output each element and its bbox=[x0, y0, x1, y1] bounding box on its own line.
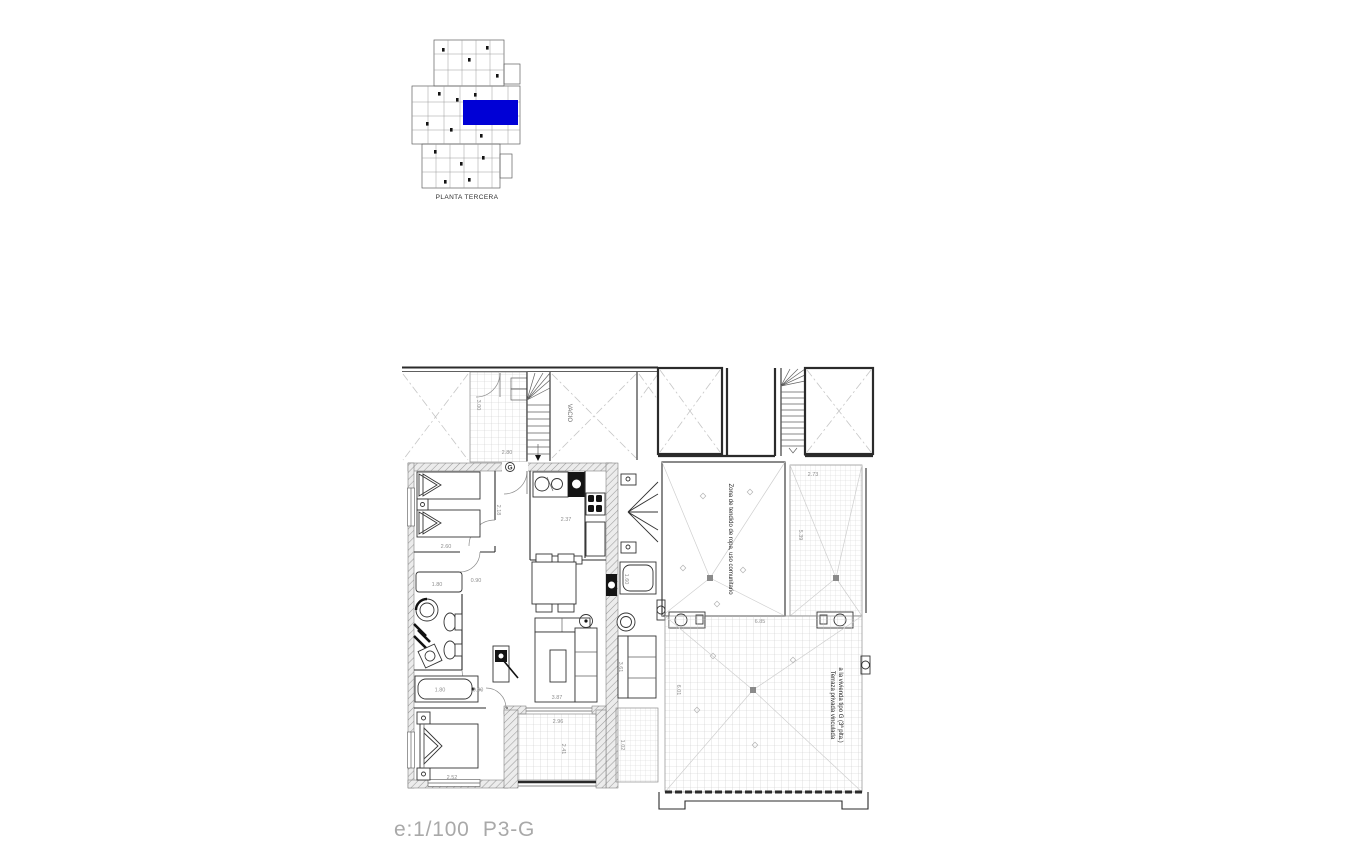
living-dining: 3.87 bbox=[493, 554, 597, 702]
dim-laundry-side: 2.73 bbox=[808, 472, 819, 478]
dim-living: 3.87 bbox=[552, 695, 563, 701]
dim-upper-height: 3.00 bbox=[475, 400, 481, 411]
main-terrace: 6.01 Terraza privada vinculada a la vivi… bbox=[659, 616, 870, 809]
dim-bath-pass: 0.90 bbox=[471, 578, 482, 584]
dim-bathtub: 1.80 bbox=[435, 688, 446, 694]
dim-upper-width: 2.80 bbox=[502, 450, 513, 456]
dim-adj-balcony: 1.02 bbox=[619, 740, 625, 751]
vacio-label: VACIO bbox=[566, 404, 572, 423]
scale-label: e:1/100 P3-G bbox=[394, 818, 535, 842]
dim-vanity: 1.80 bbox=[432, 582, 443, 588]
kitchen: 2.37 bbox=[533, 471, 605, 564]
unit-floor-plan: 3.00 2.80 VACIO bbox=[400, 360, 665, 805]
laundry-zone-label: Zona de tendido de ropa, uso comunitario bbox=[727, 483, 733, 595]
stair-roof bbox=[781, 368, 805, 456]
private-terrace-label-1: Terraza privada vinculada bbox=[829, 671, 835, 740]
dim-bath-hall: 0.90 bbox=[473, 688, 484, 694]
dim-adj-tub: 1.60 bbox=[623, 574, 629, 585]
upper-communal-area: 3.00 2.80 VACIO bbox=[402, 368, 658, 463]
private-terrace-label-2: a la vivienda tipo G (3ª plta.) bbox=[837, 667, 844, 742]
dim-hall: 2.18 bbox=[495, 505, 501, 516]
bedroom1-furniture: 2.60 bbox=[417, 472, 480, 550]
key-plan-building bbox=[412, 40, 520, 188]
key-plan bbox=[408, 38, 526, 190]
laundry-zone: Zona de tendido de ropa, uso comunitario bbox=[657, 462, 785, 620]
dim-terrace-w: 2.96 bbox=[553, 719, 564, 725]
roof-upper-area bbox=[658, 368, 873, 456]
dim-bedroom1: 2.60 bbox=[441, 544, 452, 550]
dim-terrace-depth: 6.01 bbox=[675, 685, 681, 696]
dim-bedroom2: 2.52 bbox=[447, 775, 458, 781]
unit-terrace: 2.96 2.41 bbox=[518, 714, 596, 786]
bedroom2-furniture: 2.52 bbox=[417, 712, 478, 781]
upper-terrace: 2.73 5.39 bbox=[790, 465, 866, 616]
bathroom: 1.80 0.90 1.80 0.90 bbox=[414, 572, 483, 702]
tv-icon bbox=[493, 646, 518, 682]
roof-terrace-plan: Zona de tendido de ropa, uso comunitario… bbox=[655, 360, 875, 812]
plan-sheet: PLANTA TERCERA 3.00 2.80 bbox=[0, 0, 1360, 850]
key-plan-caption: PLANTA TERCERA bbox=[408, 194, 526, 201]
dim-adj-sofa: 3.61 bbox=[617, 662, 623, 673]
stove-icon bbox=[586, 493, 605, 515]
unit-highlight bbox=[463, 100, 518, 125]
dim-kitchen: 2.37 bbox=[561, 517, 572, 523]
dim-laundry-depth: 5.39 bbox=[797, 530, 803, 541]
shower-basin bbox=[418, 644, 442, 668]
bathtub: 1.80 bbox=[415, 676, 478, 702]
roof-markers bbox=[680, 489, 753, 607]
dim-terrace-d: 2.41 bbox=[560, 744, 566, 755]
unit-letter-label: G bbox=[507, 465, 512, 472]
